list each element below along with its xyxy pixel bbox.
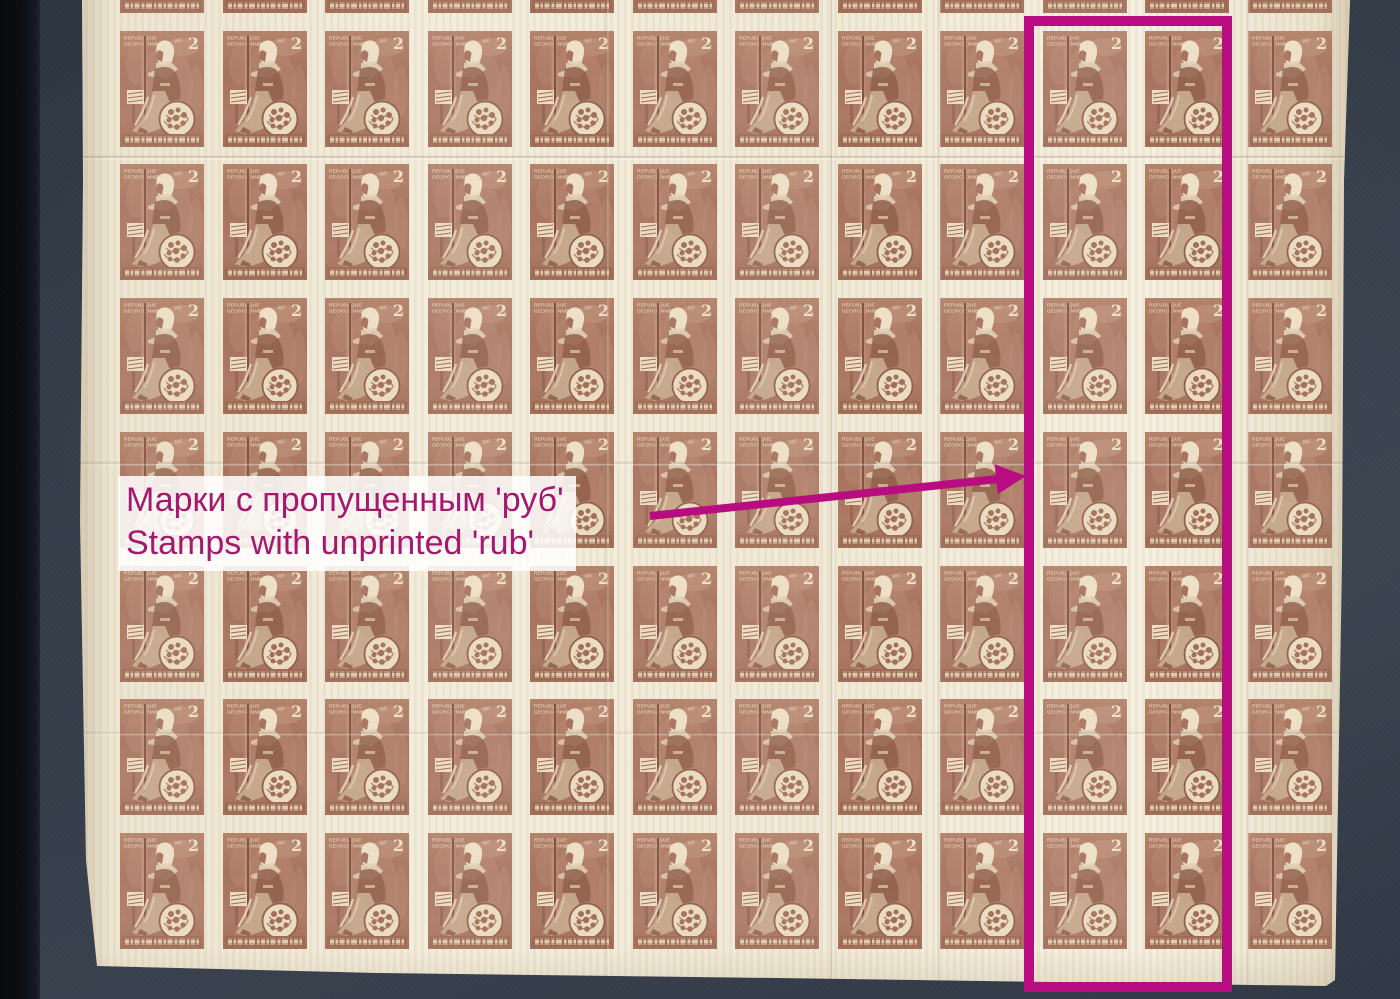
stamp: руб	[735, 566, 819, 682]
stamp: руб	[838, 432, 922, 548]
rub-overprint: руб	[585, 840, 592, 845]
rub-overprint: руб	[175, 706, 182, 711]
rub-overprint: руб	[175, 573, 182, 578]
rub-overprint: руб	[482, 171, 489, 176]
stamp: руб	[120, 164, 204, 280]
stamp: руб	[325, 31, 409, 147]
stamp: руб	[940, 298, 1024, 414]
stamp: руб	[838, 833, 922, 949]
highlight-rectangle	[1024, 16, 1232, 992]
stamp: руб	[735, 699, 819, 815]
rub-overprint: руб	[892, 840, 899, 845]
stamp: руб	[120, 833, 204, 949]
rub-overprint: руб	[687, 840, 694, 845]
rub-overprint: руб	[380, 439, 387, 444]
rub-overprint: руб	[892, 706, 899, 711]
stamp: руб	[120, 699, 204, 815]
rub-overprint: руб	[790, 305, 797, 310]
stamp: руб	[940, 164, 1024, 280]
rub-overprint: руб	[790, 171, 797, 176]
stamp: руб	[530, 566, 614, 682]
rub-overprint: руб	[482, 840, 489, 845]
rub-overprint: руб	[482, 305, 489, 310]
rub-overprint: руб	[892, 573, 899, 578]
stamp: руб	[633, 164, 717, 280]
stamp: руб	[223, 699, 307, 815]
stamp: руб	[1248, 699, 1332, 815]
stamp: руб	[223, 833, 307, 949]
rub-overprint: руб	[277, 38, 284, 43]
rub-overprint: руб	[277, 573, 284, 578]
stamp: руб	[530, 699, 614, 815]
stamp: руб	[940, 699, 1024, 815]
stamp: руб	[735, 0, 819, 13]
stamp: руб	[223, 0, 307, 13]
rub-overprint: руб	[892, 305, 899, 310]
stamp: руб	[120, 31, 204, 147]
rub-overprint: руб	[482, 706, 489, 711]
photo-stage: REPUBLIQUE GEORGIENNE 2	[0, 0, 1400, 999]
stamp: руб	[428, 0, 512, 13]
rub-overprint: руб	[995, 305, 1002, 310]
annotation-label: Марки с пропущенным 'руб' Stamps with un…	[118, 476, 576, 571]
stamp: руб	[838, 298, 922, 414]
stamp: руб	[838, 566, 922, 682]
stamp: руб	[530, 0, 614, 13]
stamp-missing-rub	[1043, 0, 1127, 13]
rub-overprint: руб	[175, 305, 182, 310]
stamp: руб	[428, 298, 512, 414]
stamp: руб	[325, 164, 409, 280]
stamp: руб	[1248, 0, 1332, 13]
stamp: руб	[428, 31, 512, 147]
rub-overprint: руб	[175, 840, 182, 845]
rub-overprint: руб	[995, 439, 1002, 444]
stamp: руб	[633, 566, 717, 682]
stamp: руб	[325, 566, 409, 682]
rub-overprint: руб	[995, 171, 1002, 176]
rub-overprint: руб	[790, 706, 797, 711]
stamp: руб	[223, 298, 307, 414]
stamp: руб	[530, 164, 614, 280]
stamp: руб	[940, 0, 1024, 13]
stamp: руб	[1248, 432, 1332, 548]
rub-overprint: руб	[1302, 706, 1309, 711]
stamp: руб	[223, 164, 307, 280]
rub-overprint: руб	[585, 305, 592, 310]
stamp: руб	[120, 298, 204, 414]
rub-overprint: руб	[380, 573, 387, 578]
stamp: руб	[633, 699, 717, 815]
rub-overprint: руб	[175, 439, 182, 444]
rub-overprint: руб	[380, 840, 387, 845]
rub-overprint: руб	[790, 573, 797, 578]
rub-overprint: руб	[380, 706, 387, 711]
rub-overprint: руб	[790, 38, 797, 43]
rub-overprint: руб	[585, 573, 592, 578]
stamp: руб	[940, 566, 1024, 682]
stamp: руб	[223, 566, 307, 682]
stamp-missing-rub	[1145, 0, 1229, 13]
stamp: руб	[223, 31, 307, 147]
stamp: руб	[1248, 164, 1332, 280]
rub-overprint: руб	[995, 38, 1002, 43]
stamp: руб	[1248, 566, 1332, 682]
rub-overprint: руб	[175, 38, 182, 43]
stamp: руб	[735, 432, 819, 548]
rub-overprint: руб	[1302, 305, 1309, 310]
rub-overprint: руб	[892, 38, 899, 43]
stamp: руб	[325, 833, 409, 949]
stamp: руб	[530, 833, 614, 949]
rub-overprint: руб	[995, 573, 1002, 578]
stamp: руб	[633, 298, 717, 414]
rub-overprint: руб	[380, 38, 387, 43]
rub-overprint: руб	[687, 706, 694, 711]
stamp: руб	[633, 31, 717, 147]
annotation-label-en: Stamps with unprinted 'rub'	[126, 522, 564, 565]
stamp: руб	[1248, 298, 1332, 414]
stamp: руб	[530, 31, 614, 147]
stamp: руб	[940, 31, 1024, 147]
rub-overprint: руб	[277, 706, 284, 711]
stamp: руб	[735, 164, 819, 280]
stamp: руб	[428, 699, 512, 815]
stamp: руб	[325, 298, 409, 414]
stamp: руб	[838, 164, 922, 280]
rub-overprint: руб	[277, 305, 284, 310]
stamp: руб	[838, 31, 922, 147]
rub-overprint: руб	[380, 305, 387, 310]
rub-overprint: руб	[482, 573, 489, 578]
rub-overprint: руб	[1302, 573, 1309, 578]
rub-overprint: руб	[1302, 840, 1309, 845]
rub-overprint: руб	[380, 171, 387, 176]
rub-overprint: руб	[995, 706, 1002, 711]
rub-overprint: руб	[790, 840, 797, 845]
rub-overprint: руб	[995, 840, 1002, 845]
rub-overprint: руб	[687, 573, 694, 578]
stamp: руб	[735, 833, 819, 949]
rub-overprint: руб	[277, 171, 284, 176]
rub-overprint: руб	[892, 171, 899, 176]
rub-overprint: руб	[585, 171, 592, 176]
stamp: руб	[120, 0, 204, 13]
stamp: руб	[940, 432, 1024, 548]
rub-overprint: руб	[1302, 439, 1309, 444]
annotation-label-ru: Марки с пропущенным 'руб'	[126, 479, 564, 522]
rub-overprint: руб	[585, 439, 592, 444]
rub-overprint: руб	[790, 439, 797, 444]
rub-overprint: руб	[482, 439, 489, 444]
rub-overprint: руб	[175, 171, 182, 176]
stamp: руб	[325, 699, 409, 815]
stamp: руб	[530, 298, 614, 414]
stamp: руб	[428, 164, 512, 280]
stamp: руб	[120, 566, 204, 682]
scan-edge-dark-strip	[0, 0, 40, 999]
rub-overprint: руб	[687, 305, 694, 310]
rub-overprint: руб	[482, 38, 489, 43]
stamp: руб	[325, 0, 409, 13]
rub-overprint: руб	[277, 439, 284, 444]
stamp: руб	[1248, 833, 1332, 949]
stamp: руб	[838, 699, 922, 815]
stamp: руб	[633, 0, 717, 13]
rub-overprint: руб	[585, 38, 592, 43]
stamp: руб	[735, 31, 819, 147]
rub-overprint: руб	[687, 171, 694, 176]
rub-overprint: руб	[585, 706, 592, 711]
stamp: руб	[428, 566, 512, 682]
stamp: руб	[633, 432, 717, 548]
stamp: руб	[735, 298, 819, 414]
stamp: руб	[838, 0, 922, 13]
rub-overprint: руб	[1302, 171, 1309, 176]
rub-overprint: руб	[687, 38, 694, 43]
stamp: руб	[633, 833, 717, 949]
rub-overprint: руб	[687, 439, 694, 444]
stamp: руб	[940, 833, 1024, 949]
rub-overprint: руб	[277, 840, 284, 845]
rub-overprint: руб	[892, 439, 899, 444]
stamp: руб	[1248, 31, 1332, 147]
stamp: руб	[428, 833, 512, 949]
rub-overprint: руб	[1302, 38, 1309, 43]
